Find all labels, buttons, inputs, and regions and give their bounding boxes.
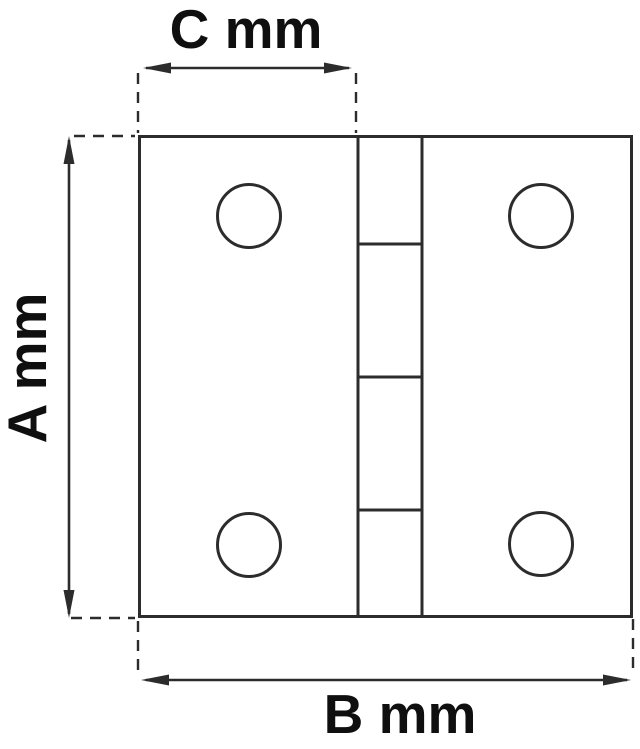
screw-hole-top-right: [510, 185, 573, 248]
screw-hole-bottom-left: [218, 514, 281, 577]
screw-hole-bottom-right: [510, 513, 573, 576]
label-dimension-a: A mm: [0, 293, 58, 444]
arrowhead-b-right: [603, 675, 631, 686]
hinge-outline-group: [140, 135, 632, 618]
arrowhead-a-down: [64, 590, 75, 618]
dimension-line-group: [69, 68, 627, 680]
extension-line-group: [71, 73, 633, 676]
arrowhead-c-left: [143, 63, 171, 74]
arrowhead-a-up: [64, 136, 75, 164]
diagram-canvas: C mm A mm B mm: [0, 0, 640, 749]
arrowhead-c-right: [324, 63, 352, 74]
screw-hole-top-left: [218, 185, 281, 248]
label-group: C mm A mm B mm: [0, 0, 476, 745]
arrowhead-group: [64, 63, 632, 686]
hinge-dimension-diagram: C mm A mm B mm: [0, 0, 640, 749]
arrowhead-b-left: [141, 675, 169, 686]
label-dimension-c: C mm: [170, 0, 323, 60]
label-dimension-b: B mm: [324, 683, 477, 745]
